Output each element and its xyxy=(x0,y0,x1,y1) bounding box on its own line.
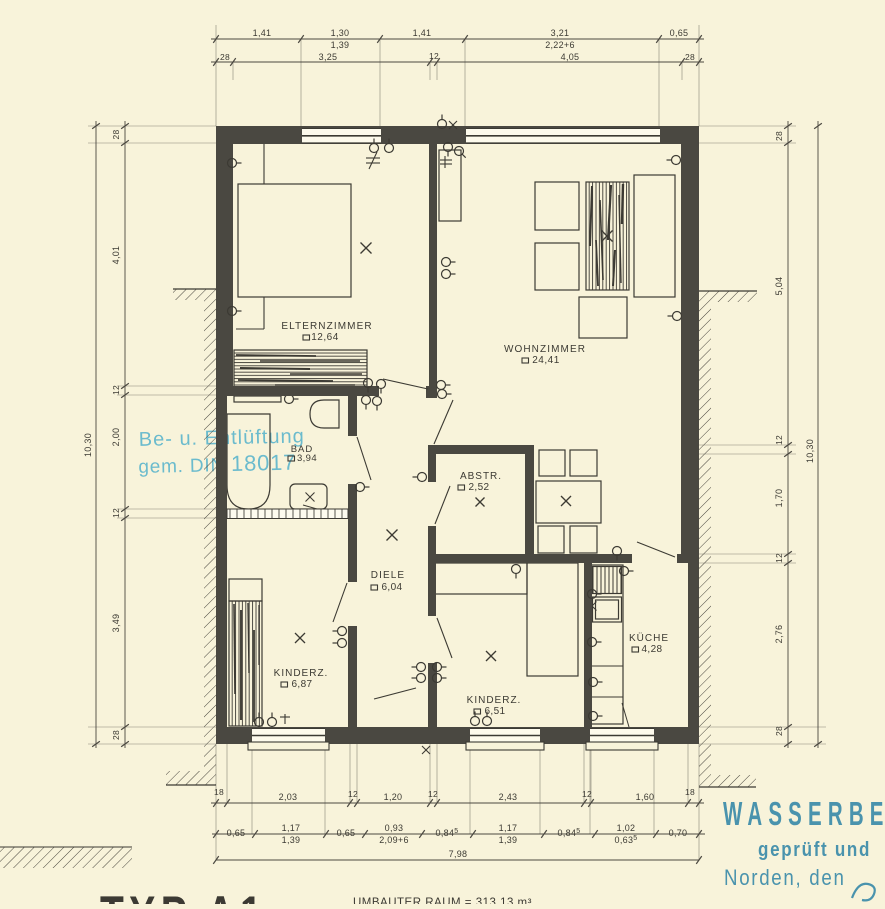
svg-text:18: 18 xyxy=(685,787,695,797)
svg-text:3,94: 3,94 xyxy=(297,453,317,464)
svg-text:KINDERZ.: KINDERZ. xyxy=(274,668,329,679)
svg-text:1,70: 1,70 xyxy=(774,489,784,508)
svg-text:3,25: 3,25 xyxy=(319,52,338,62)
svg-text:12: 12 xyxy=(111,508,121,518)
svg-text:0,65: 0,65 xyxy=(337,828,356,838)
svg-text:3,21: 3,21 xyxy=(551,28,570,38)
svg-text:UMBAUTER RAUM = 313,13 m³: UMBAUTER RAUM = 313,13 m³ xyxy=(353,897,532,904)
svg-text:1,17: 1,17 xyxy=(282,823,301,833)
svg-text:3,49: 3,49 xyxy=(111,614,121,633)
svg-text:1,60: 1,60 xyxy=(636,792,655,802)
svg-text:4,01: 4,01 xyxy=(111,246,121,265)
svg-text:4,05: 4,05 xyxy=(561,52,580,62)
svg-text:2,22+6: 2,22+6 xyxy=(545,40,575,50)
svg-text:2,43: 2,43 xyxy=(499,792,518,802)
svg-text:6,51: 6,51 xyxy=(484,706,505,717)
svg-text:28: 28 xyxy=(774,726,784,736)
svg-text:12: 12 xyxy=(582,789,592,799)
svg-text:6,87: 6,87 xyxy=(291,679,312,690)
svg-text:WASSERBEHÖRDE: WASSERBEHÖRDE xyxy=(723,795,885,832)
svg-text:2,09+6: 2,09+6 xyxy=(379,835,409,845)
svg-text:12: 12 xyxy=(774,435,784,445)
svg-text:2,03: 2,03 xyxy=(279,792,298,802)
svg-text:24,41: 24,41 xyxy=(532,355,560,366)
svg-text:1,02: 1,02 xyxy=(617,823,636,833)
svg-text:DIELE: DIELE xyxy=(371,570,405,581)
svg-text:0,70: 0,70 xyxy=(669,828,688,838)
svg-text:1,41: 1,41 xyxy=(413,28,432,38)
svg-text:0,93: 0,93 xyxy=(385,823,404,833)
svg-text:TYP A1: TYP A1 xyxy=(100,885,267,904)
svg-text:7,98: 7,98 xyxy=(449,849,468,859)
svg-text:28: 28 xyxy=(111,129,121,139)
svg-text:12,64: 12,64 xyxy=(311,332,339,343)
svg-text:28: 28 xyxy=(685,52,695,62)
svg-text:28: 28 xyxy=(774,131,784,141)
svg-text:1,39: 1,39 xyxy=(331,40,350,50)
svg-text:18: 18 xyxy=(214,787,224,797)
svg-text:28: 28 xyxy=(111,730,121,740)
svg-text:ELTERNZIMMER: ELTERNZIMMER xyxy=(281,321,372,332)
svg-text:12: 12 xyxy=(774,553,784,563)
svg-text:10,30: 10,30 xyxy=(83,433,93,457)
svg-text:4,28: 4,28 xyxy=(641,644,662,655)
svg-text:2,76: 2,76 xyxy=(774,625,784,644)
svg-text:KÜCHE: KÜCHE xyxy=(629,632,669,644)
svg-text:1,20: 1,20 xyxy=(384,792,403,802)
svg-text:1,41: 1,41 xyxy=(253,28,272,38)
svg-text:12: 12 xyxy=(429,51,439,61)
svg-text:ABSTR.: ABSTR. xyxy=(460,471,502,482)
svg-text:0,65: 0,65 xyxy=(227,828,246,838)
svg-text:6,04: 6,04 xyxy=(381,582,402,593)
svg-text:0,65: 0,65 xyxy=(670,28,689,38)
svg-text:2,52: 2,52 xyxy=(468,482,489,493)
svg-text:WOHNZIMMER: WOHNZIMMER xyxy=(504,344,586,355)
svg-text:1,30: 1,30 xyxy=(331,28,350,38)
svg-text:12: 12 xyxy=(428,789,438,799)
svg-text:geprüft und: geprüft und xyxy=(758,838,871,861)
svg-text:1,39: 1,39 xyxy=(282,835,301,845)
svg-text:5,04: 5,04 xyxy=(774,277,784,296)
svg-text:1,39: 1,39 xyxy=(499,835,518,845)
svg-text:12: 12 xyxy=(348,789,358,799)
svg-text:KINDERZ.: KINDERZ. xyxy=(467,695,522,706)
svg-text:1,17: 1,17 xyxy=(499,823,518,833)
svg-text:28: 28 xyxy=(220,52,230,62)
svg-text:10,30: 10,30 xyxy=(805,439,815,463)
svg-text:2,00: 2,00 xyxy=(111,428,121,447)
svg-text:Norden, den: Norden, den xyxy=(724,867,846,891)
svg-text:12: 12 xyxy=(111,385,121,395)
